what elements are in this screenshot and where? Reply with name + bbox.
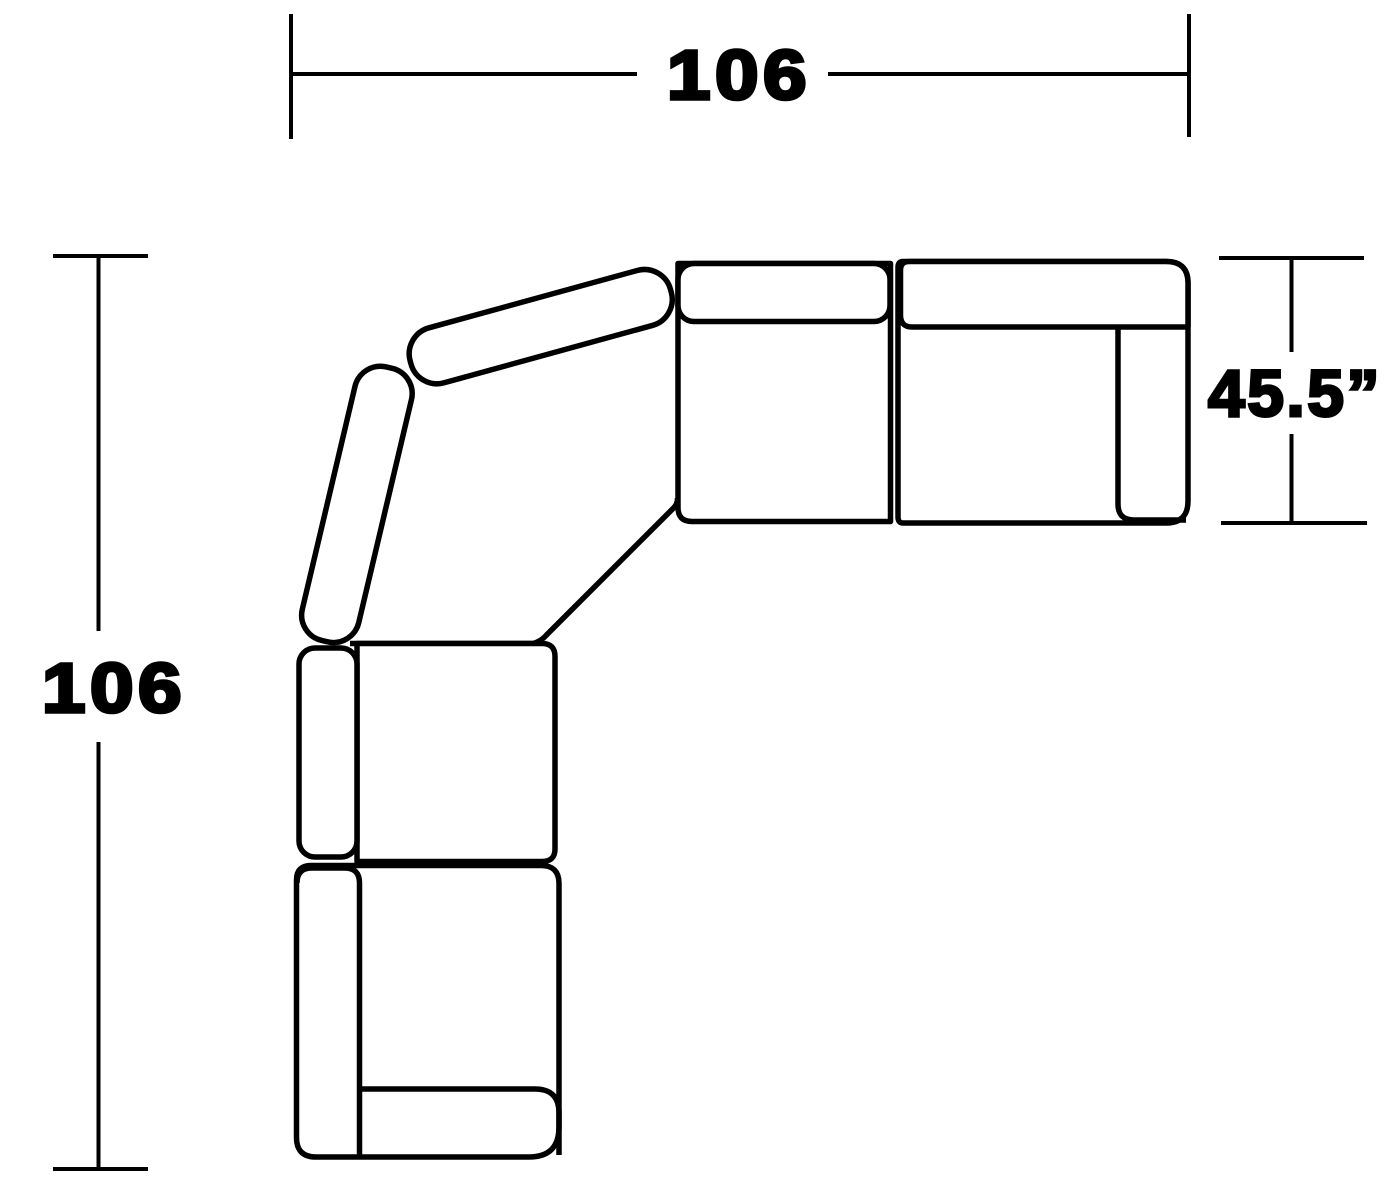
svg-text:106: 106 (667, 36, 811, 114)
svg-text:106: 106 (42, 649, 186, 727)
svg-text:45.5”: 45.5” (1208, 356, 1382, 430)
